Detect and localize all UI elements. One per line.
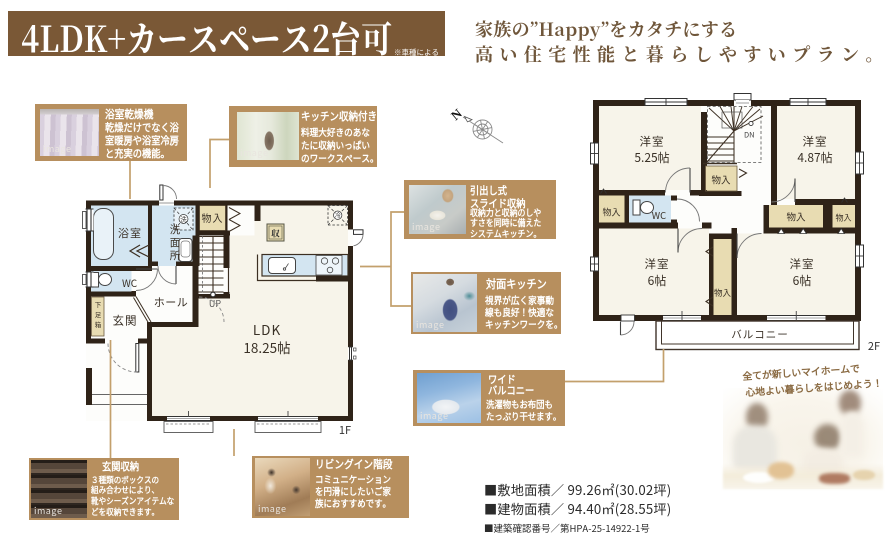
svg-text:1F: 1F xyxy=(339,422,351,438)
svg-text:物入: 物入 xyxy=(836,213,852,224)
svg-text:バルコニー: バルコニー xyxy=(731,327,789,342)
svg-text:物入: 物入 xyxy=(714,287,732,299)
svg-text:洋室: 洋室 xyxy=(803,134,828,150)
svg-text:洋室: 洋室 xyxy=(640,134,665,150)
svg-text:洋室: 洋室 xyxy=(790,256,815,272)
svg-text:浴室: 浴室 xyxy=(118,225,142,241)
svg-text:5.25帖: 5.25帖 xyxy=(634,149,669,166)
svg-text:2F: 2F xyxy=(868,338,880,354)
svg-text:WC: WC xyxy=(652,208,666,222)
svg-text:4.87帖: 4.87帖 xyxy=(797,149,832,166)
svg-text:18.25帖: 18.25帖 xyxy=(243,337,290,357)
svg-text:6帖: 6帖 xyxy=(793,272,812,289)
svg-text:収: 収 xyxy=(271,228,280,240)
svg-text:冷: 冷 xyxy=(335,211,341,220)
svg-text:物入: 物入 xyxy=(602,206,620,219)
svg-text:ホール: ホール xyxy=(154,294,189,310)
svg-text:物入: 物入 xyxy=(202,210,224,225)
svg-text:玄関: 玄関 xyxy=(113,313,138,329)
svg-text:洗: 洗 xyxy=(180,214,187,224)
svg-text:物入: 物入 xyxy=(711,173,731,187)
svg-text:洗面所: 洗面所 xyxy=(170,222,181,263)
svg-text:物入: 物入 xyxy=(786,210,806,224)
svg-text:6帖: 6帖 xyxy=(648,272,667,289)
svg-text:下足箱: 下足箱 xyxy=(95,299,102,329)
svg-text:N: N xyxy=(446,103,466,124)
svg-text:LDK: LDK xyxy=(253,319,281,339)
svg-text:洋室: 洋室 xyxy=(645,256,670,272)
svg-text:DN: DN xyxy=(744,130,755,141)
svg-text:WC: WC xyxy=(122,275,138,290)
